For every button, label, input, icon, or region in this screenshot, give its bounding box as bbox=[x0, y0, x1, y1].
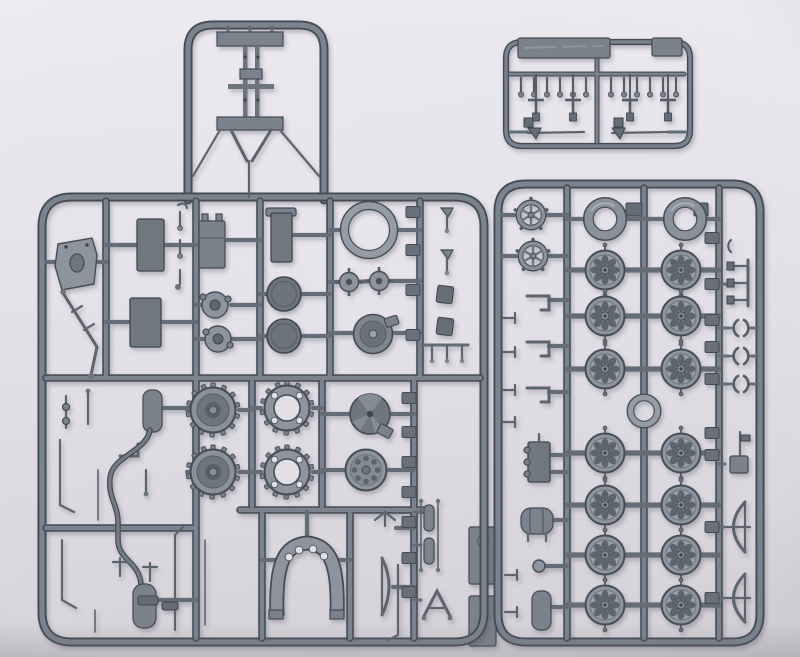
fuel-tank-part bbox=[130, 298, 161, 347]
runner-tab bbox=[406, 207, 420, 218]
runner-tab bbox=[402, 587, 416, 598]
bottom-shadow bbox=[0, 622, 800, 657]
runner-tab bbox=[705, 233, 719, 244]
runner-tab bbox=[705, 315, 719, 326]
bracket-stack-part bbox=[727, 260, 748, 306]
sprues-scene bbox=[0, 0, 800, 657]
runner-tab bbox=[705, 522, 719, 533]
runner-tab bbox=[402, 427, 416, 438]
stowage-box-part bbox=[137, 219, 164, 271]
hatch-disc-part bbox=[267, 277, 301, 311]
runner-tab bbox=[402, 517, 416, 528]
runner-tab bbox=[406, 285, 420, 296]
runner-tab bbox=[402, 553, 416, 564]
runner-tab bbox=[406, 330, 420, 341]
runner-tab bbox=[705, 279, 719, 290]
runner-tab bbox=[402, 487, 416, 498]
corner-plate bbox=[652, 38, 682, 56]
ball-part bbox=[533, 560, 545, 572]
runner-tab bbox=[705, 374, 719, 385]
label-plate bbox=[518, 38, 610, 58]
engine-block-part bbox=[199, 214, 225, 268]
connector-block bbox=[626, 203, 642, 216]
hatch-disc-part bbox=[267, 319, 301, 353]
idler-wheel bbox=[346, 450, 387, 491]
gearbox-part bbox=[266, 208, 296, 262]
runner-tab bbox=[402, 393, 416, 404]
model-kit-sprues-photo: Photograph of three grey injection-mould… bbox=[0, 0, 800, 657]
runner-tab bbox=[705, 593, 719, 604]
runner-tab bbox=[705, 450, 719, 461]
runner-tab bbox=[705, 342, 719, 353]
runner-tab bbox=[705, 428, 719, 439]
runner-tab bbox=[406, 245, 420, 256]
runner-tab bbox=[402, 457, 416, 468]
bracket-part bbox=[55, 238, 97, 290]
